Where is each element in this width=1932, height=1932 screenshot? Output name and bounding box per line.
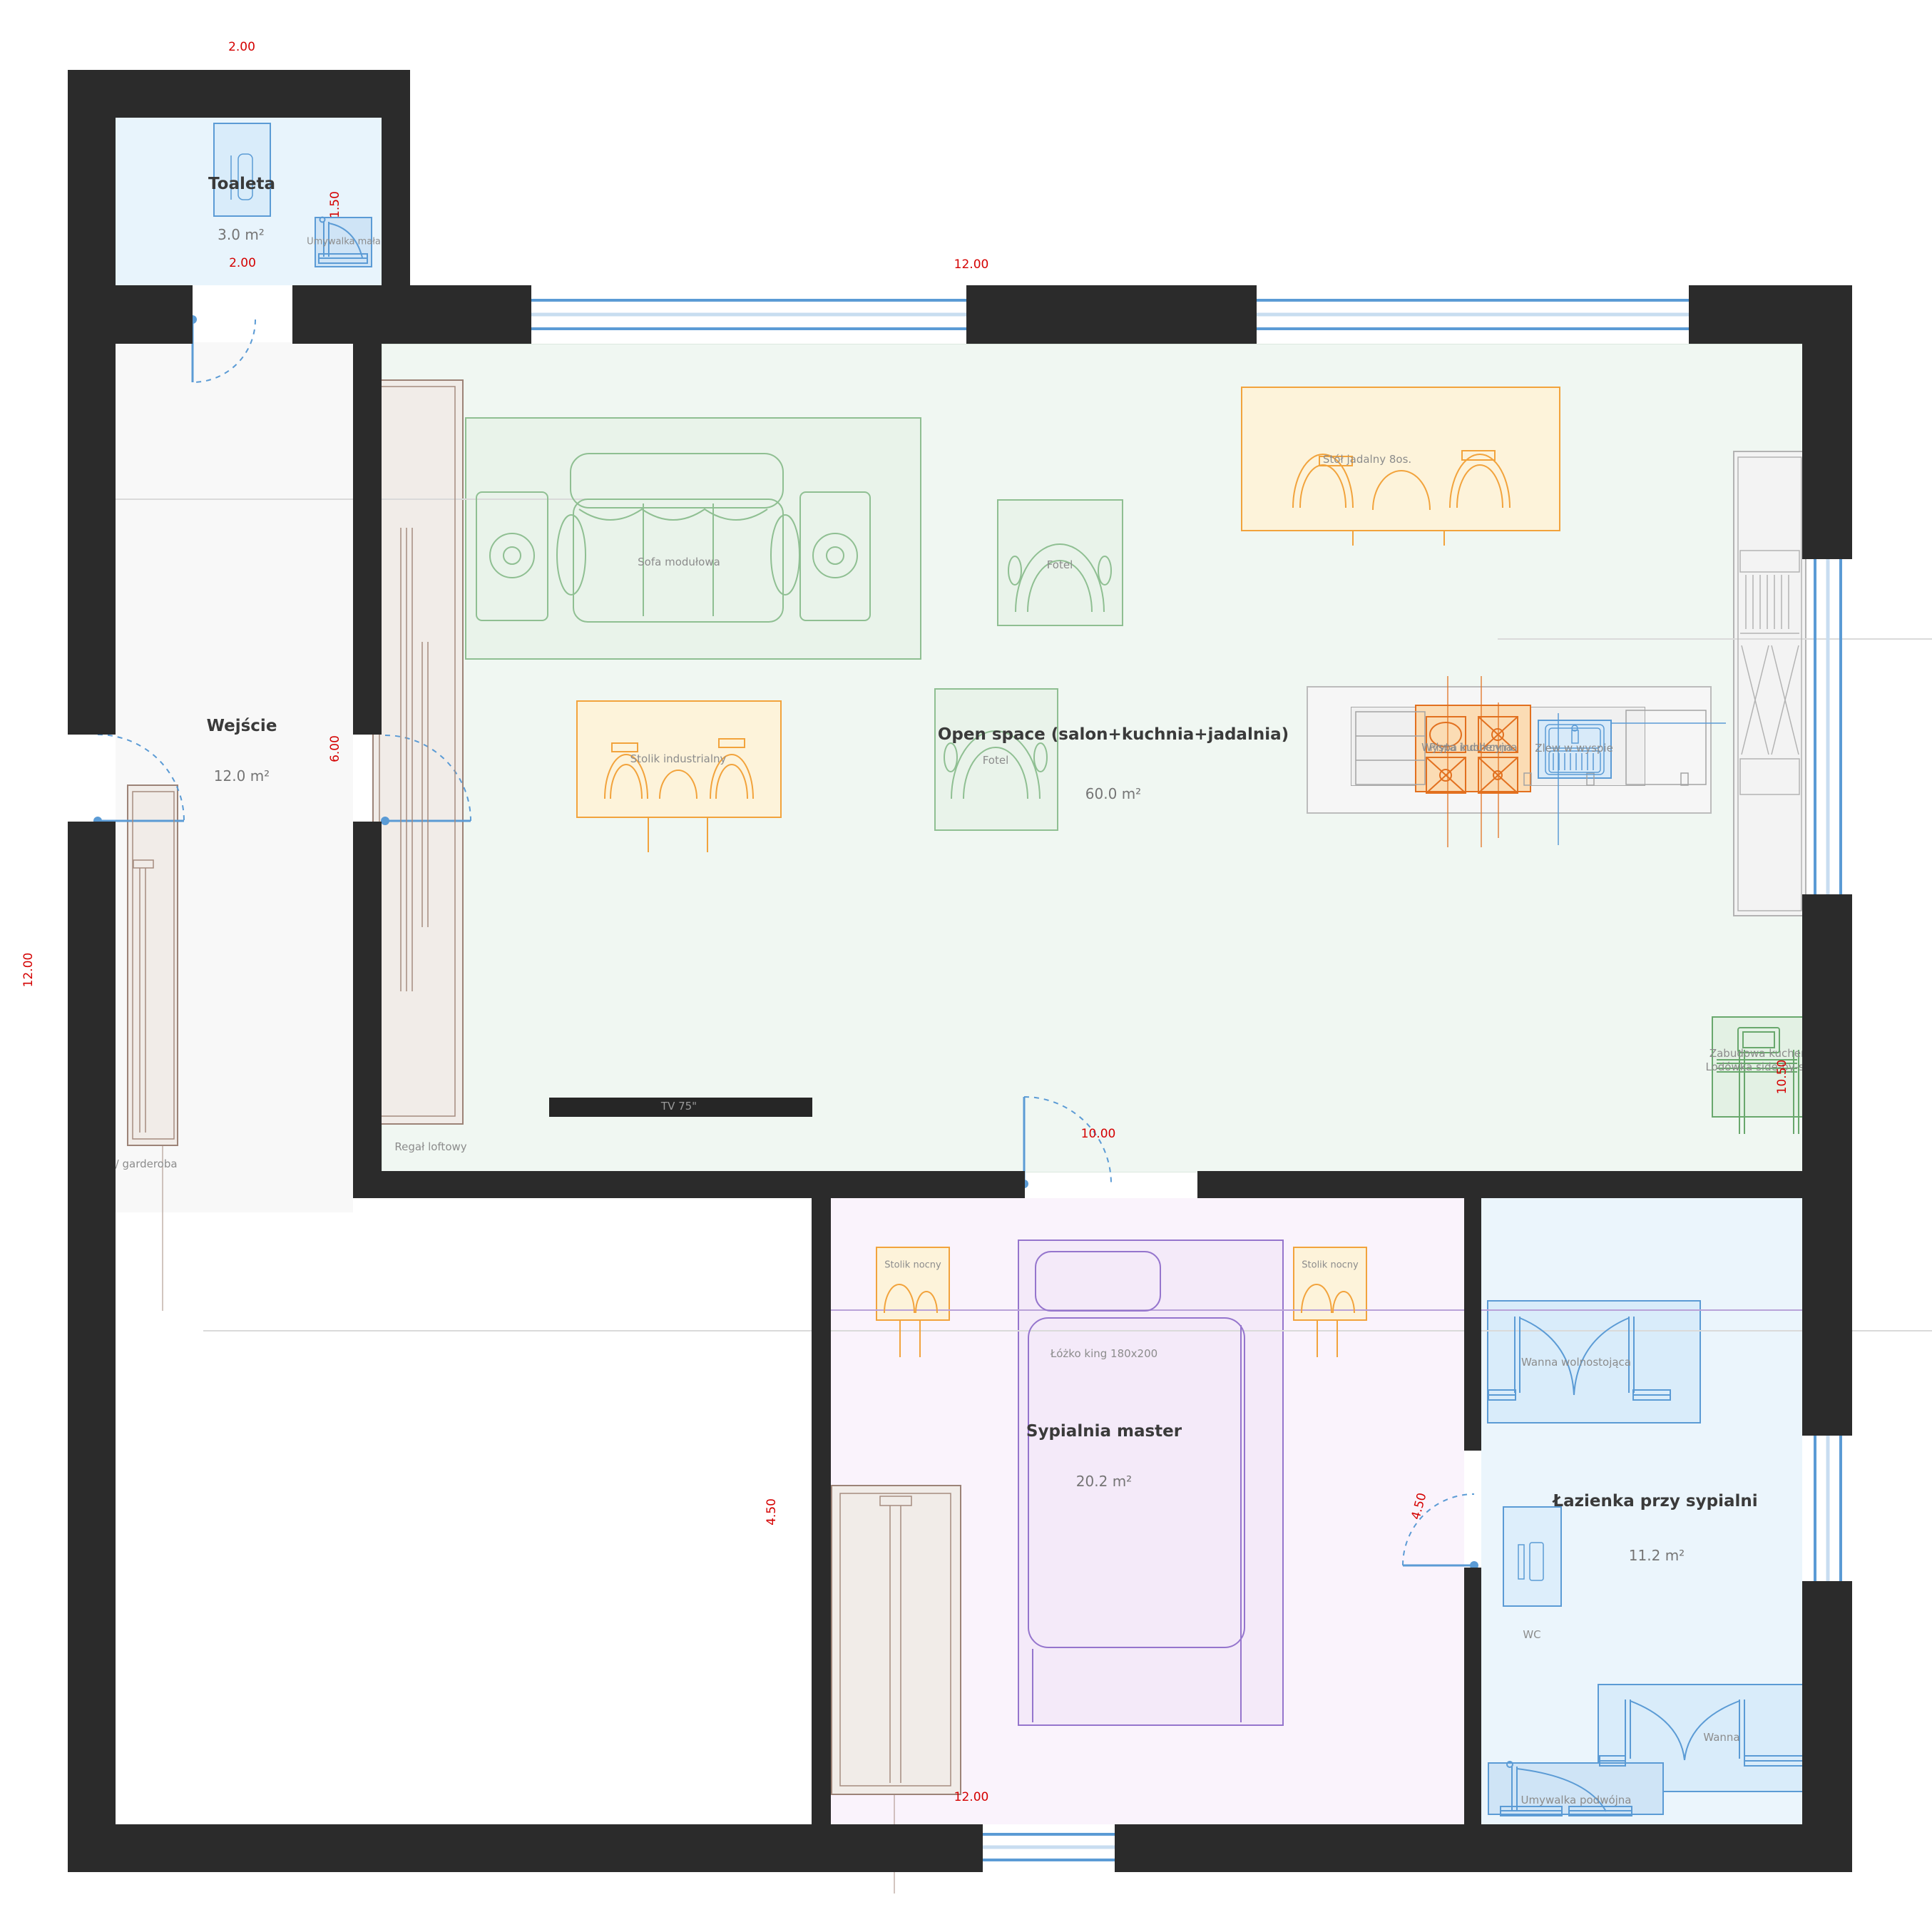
label-coffee-table: Stolik industrialny — [630, 752, 727, 765]
sofa-icon — [476, 454, 870, 622]
label-loft-shelf: Regał loftowy — [394, 1140, 466, 1153]
wall-toilet-top — [68, 70, 410, 118]
room-name-bathroom: Łazienka przy sypialni — [1553, 1492, 1757, 1511]
label-dining-table: Stół jadalny 8os. — [1323, 453, 1411, 466]
label-nightstand-right: Stolik nocny — [1302, 1260, 1358, 1271]
label-bathroom-wc: WC — [1523, 1628, 1540, 1641]
wall-bottom-a — [68, 1824, 983, 1872]
wall-mid-a — [353, 1171, 1025, 1198]
label-sofa: Sofa modułowa — [638, 556, 720, 568]
entrance-living-door-icon — [381, 735, 471, 825]
label-induction-hob: Płyta indukcyjna — [1429, 741, 1517, 754]
label-nightstand-left: Stolik nocny — [884, 1260, 941, 1271]
nightstand-icons — [884, 1284, 1354, 1357]
wall-entrance-living-a — [353, 342, 382, 735]
dim-bottom-width: 12.00 — [954, 1790, 989, 1804]
wall-left-lower — [68, 822, 116, 1872]
wall-mid-b — [1197, 1171, 1852, 1198]
dim-toilet-depth: 1.50 — [328, 191, 342, 218]
tall-cabinet-detail-icons — [1738, 457, 1801, 911]
dim-toilet-top: 2.00 — [228, 40, 255, 54]
wall-bed-bath-b — [1464, 1568, 1481, 1824]
section-lines — [116, 499, 1932, 1331]
room-name-toilet: Toaleta — [208, 175, 275, 193]
room-name-entrance: Wejście — [207, 717, 277, 735]
toilet-door-icon — [188, 315, 255, 382]
wall-right-b — [1802, 894, 1852, 1436]
wall-toilet-right — [382, 118, 410, 285]
wall-bedroom-left — [812, 1198, 831, 1824]
wall-bed-bath-a — [1464, 1198, 1481, 1451]
window-icon — [531, 300, 1841, 1860]
island-detail-icons — [1356, 710, 1706, 785]
label-bathtub: Wanna — [1703, 1731, 1739, 1744]
dim-toilet-width: 2.00 — [229, 256, 256, 270]
wall-entrance-living-b — [353, 822, 382, 1171]
armchair-icons — [944, 544, 1111, 799]
bedroom-door-icon — [1020, 1097, 1111, 1188]
room-area-bathroom: 11.2 m² — [1629, 1547, 1685, 1564]
dim-top-width: 12.00 — [954, 257, 989, 272]
wall-bottom-b — [1115, 1824, 1852, 1872]
room-name-open-space: Open space (salon+kuchnia+jadalnia) — [938, 725, 1289, 744]
dim-bedroom-left: 4.50 — [765, 1498, 779, 1525]
wall-top-a — [116, 285, 193, 344]
entrance-door-icon — [93, 735, 184, 825]
dim-kitchen-wall: 10.50 — [1775, 1060, 1789, 1095]
hob-axis-lines — [1448, 676, 1498, 847]
label-armchair-top: Fotel — [1047, 558, 1073, 571]
label-armchair-mid: Fotel — [983, 754, 1009, 767]
label-small-washbasin: Umywalka mała — [307, 237, 381, 247]
label-freestanding-tub: Wanna wolnostojąca — [1521, 1356, 1631, 1369]
room-area-toilet: 3.0 m² — [218, 226, 265, 243]
label-double-washbasin: Umywalka podwójna — [1520, 1794, 1631, 1806]
dim-entry-height: 6.00 — [328, 735, 342, 762]
wall-left-upper — [68, 70, 116, 735]
island-sink-icon — [1545, 713, 1726, 845]
room-area-entrance: 12.0 m² — [214, 767, 270, 784]
room-area-bedroom: 20.2 m² — [1076, 1473, 1132, 1490]
wall-top-c — [966, 285, 1257, 344]
room-area-open-space: 60.0 m² — [1085, 785, 1141, 802]
label-bed: Łóżko king 180x200 — [1051, 1347, 1157, 1360]
bed-icon — [1028, 1252, 1244, 1722]
bath-fixture-icons — [231, 154, 1804, 1816]
door-icons — [93, 315, 1478, 1570]
label-island-sink: Zlew w wyspie — [1535, 742, 1613, 755]
wall-right-a — [1802, 285, 1852, 559]
dim-living-door: 10.00 — [1081, 1127, 1116, 1141]
room-name-bedroom: Sypialnia master — [1026, 1422, 1182, 1441]
label-tv: TV 75" — [661, 1100, 697, 1113]
floor-plan: Toaleta 3.0 m² Wejście 12.0 m² Open spac… — [0, 0, 1932, 1932]
dim-left-height: 12.00 — [21, 953, 36, 988]
wall-top-b — [292, 285, 531, 344]
